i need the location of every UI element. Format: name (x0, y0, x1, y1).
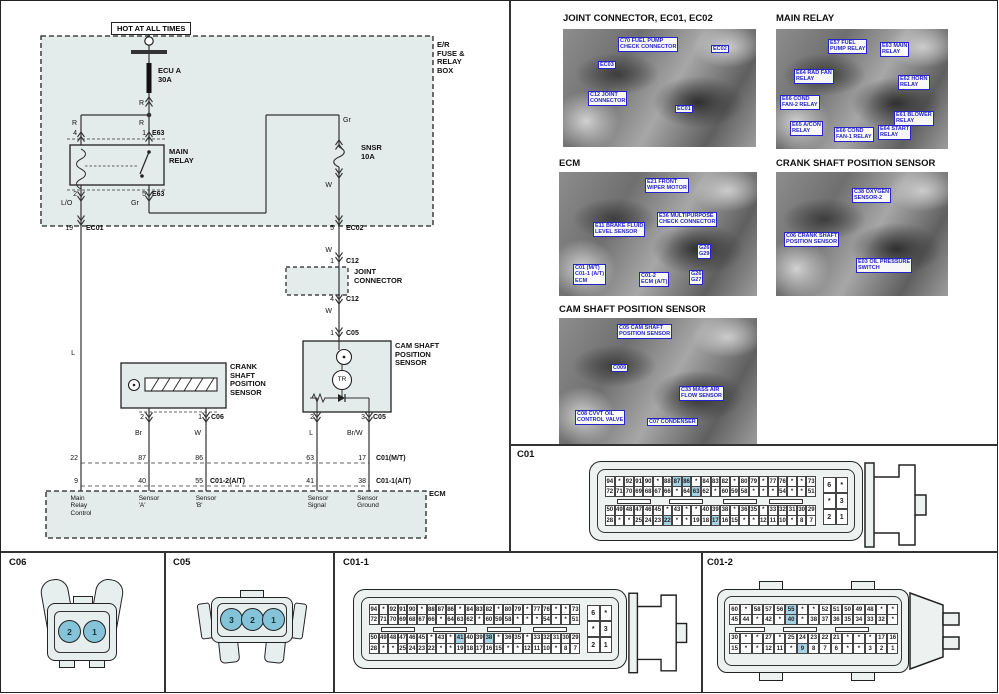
pin-cell: * (774, 633, 785, 644)
pin-cell: 30 (729, 633, 740, 644)
pin-cell: 63 (691, 486, 701, 497)
schematic-text-wire-gr-1: Gr (131, 200, 139, 208)
pin-cell: * (865, 633, 876, 644)
photo-callout: C05 CAM SHAFT POSITION SENSOR (617, 324, 672, 339)
pin-cell: * (887, 604, 898, 615)
pin-cell: * (523, 604, 533, 615)
pin-cell: 92 (388, 604, 398, 615)
pin-cell: 22 (427, 643, 437, 654)
pin-cell: * (740, 604, 751, 615)
photo-callout: E63 MAIN RELAY (880, 42, 909, 57)
pin-cell: * (682, 505, 692, 516)
pin-cell: 80 (739, 476, 749, 487)
pin-cell: 70 (624, 486, 634, 497)
pin-cell: 51 (570, 614, 580, 625)
schematic-text-conn-e63-top: E63 (152, 130, 164, 138)
schematic-text-wire-w-4: W (194, 430, 201, 438)
pin-cell: * (523, 633, 533, 644)
pin-cell: * (797, 614, 808, 625)
connector-key-tab (783, 627, 817, 632)
photo-callout: C01 (M/T) C01-1 (A/T) ECM (573, 264, 606, 285)
schematic-text-main-relay: MAIN RELAY (169, 148, 194, 165)
pin-cell: 63 (455, 614, 465, 625)
photo-callout: E62 HORN RELAY (898, 75, 930, 90)
pin-cell: 38 (808, 614, 819, 625)
photo-callout: E65 A/CON RELAY (790, 121, 823, 136)
pin-cell: 35 (749, 505, 759, 516)
pin-cell: * (455, 604, 465, 615)
schematic-text-wire-r-1: R (139, 100, 144, 108)
pin-cell: 28 (605, 515, 615, 526)
pin-cell: 51 (806, 486, 816, 497)
pin-cell: 73 (570, 604, 580, 615)
pin-cell: 43 (672, 505, 682, 516)
pin-cell: 15 (729, 643, 740, 654)
connector-key-tab (835, 627, 869, 632)
schematic-text-fuse-ecu-a: ECU A 30A (158, 67, 181, 84)
pin-cell: * (759, 505, 769, 516)
schematic-text-pin-2: 2 (73, 191, 77, 199)
schematic-text-wire-w-1: W (325, 182, 332, 190)
schematic-text-conn-c01-2-at: C01-2(A/T) (210, 478, 245, 486)
c05-pin-1: 1 (262, 608, 285, 631)
c06-connector-drawing: 2 1 (31, 573, 141, 683)
pin-cell: * (615, 515, 625, 526)
pin-cell-side: 2 (587, 637, 600, 653)
pin-cell: 70 (388, 614, 398, 625)
schematic-text-pin-1-c12: 1 (330, 258, 334, 266)
schematic-text-ecm-pin-40: 40 (138, 478, 146, 486)
photo-callout: E64 RAD FAN RELAY (794, 69, 834, 84)
connector-key-tab (769, 499, 803, 504)
pin-cell: * (787, 515, 797, 526)
schematic-text-ecm: ECM (429, 490, 446, 499)
pin-cell: 51 (831, 604, 842, 615)
pin-cell-side: * (600, 605, 613, 621)
connector-key-tab (487, 627, 521, 632)
c01-connector-drawing: 94*929190*888786*848382*8079*7776**73727… (589, 457, 989, 552)
pin-cell: 86 (682, 476, 692, 487)
pin-cell: * (887, 614, 898, 625)
pin-cell: 19 (691, 515, 701, 526)
pin-cell: 18 (701, 515, 711, 526)
pin-cell: 60 (484, 614, 494, 625)
schematic-text-pin-4: 4 (73, 130, 77, 138)
pin-cell: 12 (759, 515, 769, 526)
pin-cell: 33 (768, 505, 778, 516)
pin-cell: * (787, 476, 797, 487)
pin-cell: * (797, 486, 807, 497)
photo-callout: E03 OIL PRESSURE SWITCH (856, 258, 912, 273)
pin-cell: 35 (842, 614, 853, 625)
pin-row: 60*58575655**5251504948** (729, 604, 898, 615)
pin-cell: 55 (785, 604, 796, 615)
photo-callout: EC03 (598, 61, 616, 69)
pin-cell: 30 (561, 633, 571, 644)
photo-title-joint-connector: JOINT CONNECTOR, EC01, EC02 (563, 13, 713, 24)
pin-cell: 38 (720, 505, 730, 516)
pin-cell: 23 (808, 633, 819, 644)
pin-cell: 27 (763, 633, 774, 644)
pin-cell: * (446, 633, 456, 644)
pin-cell-side: * (587, 621, 600, 637)
pin-cell: * (672, 515, 682, 526)
pin-cell: 29 (806, 505, 816, 516)
pin-cell: * (551, 614, 561, 625)
pin-cell: 80 (503, 604, 513, 615)
pin-cell: 8 (808, 643, 819, 654)
pin-cell: 16 (887, 633, 898, 644)
pin-cell: * (711, 486, 721, 497)
pin-cell: 32 (876, 614, 887, 625)
schematic-text-crank-sensor: CRANK SHAFT POSITION SENSOR (230, 363, 266, 397)
pin-cell: 8 (561, 643, 571, 654)
divider-bottom-3 (701, 551, 703, 692)
pin-cell: * (759, 486, 769, 497)
schematic-text-pin-2-c06: 2 (140, 414, 144, 422)
pin-cell: 22 (663, 515, 673, 526)
schematic-text-pin-3-c05: 3 (361, 414, 365, 422)
pin-cell: * (740, 633, 751, 644)
connector-key-tab (381, 627, 415, 632)
pin-cell: * (752, 614, 763, 625)
pin-cell: 6 (831, 643, 842, 654)
divider-horizontal-c01 (509, 444, 997, 446)
pin-cell: 77 (532, 604, 542, 615)
pin-cell: 1 (887, 643, 898, 654)
schematic-text-cam-sensor: CAM SHAFT POSITION SENSOR (395, 342, 439, 368)
pin-cell: 83 (711, 476, 721, 487)
pin-cell: 62 (701, 486, 711, 497)
pin-cell: 36 (739, 505, 749, 516)
schematic-text-joint-connector: JOINT CONNECTOR (354, 268, 402, 285)
schematic-text-conn-c01-1-at: C01-1(A/T) (376, 478, 411, 486)
c01-housing (863, 455, 937, 554)
schematic-text-ecm-pin-9: 9 (74, 478, 78, 486)
pin-cell: 56 (774, 604, 785, 615)
c06-pin-2: 2 (58, 620, 81, 643)
photo-callout: E64 START RELAY (878, 125, 911, 140)
pin-cell: * (615, 476, 625, 487)
pin-cell: 8 (797, 515, 807, 526)
pin-cell: * (494, 604, 504, 615)
pin-cell-side: 6 (823, 477, 836, 493)
c01-2-section-title: C01-2 (707, 557, 733, 568)
photo-callout: E66 COND FAN-2 RELAY (780, 95, 820, 110)
pin-cell: 67 (417, 614, 427, 625)
wiring-diagram-page: HOT AT ALL TIMES E/R FUSE & RELAY BOXECU… (0, 0, 998, 693)
pin-cell: * (503, 643, 513, 654)
pin-cell: 38 (484, 633, 494, 644)
photo-callout: C06 CRANK SHAFT POSITION SENSOR (784, 232, 839, 247)
pin-cell: 59 (730, 486, 740, 497)
c05-pin-3: 3 (220, 608, 243, 631)
pin-cell: 46 (407, 633, 417, 644)
pin-cell: 11 (532, 643, 542, 654)
pin-cell: 64 (446, 614, 456, 625)
pin-cell: 19 (455, 643, 465, 654)
schematic-text-wire-r-2: R (72, 120, 77, 128)
pin-cell: 40 (465, 633, 475, 644)
pin-cell: 32 (542, 633, 552, 644)
pin-cell: * (417, 604, 427, 615)
pin-cell: * (740, 643, 751, 654)
pin-cell: 79 (749, 476, 759, 487)
pin-cell: 23 (653, 515, 663, 526)
pin-cell: 12 (763, 643, 774, 654)
pin-cell: 57 (763, 604, 774, 615)
c06-section-title: C06 (9, 557, 26, 568)
pin-cell: 84 (701, 476, 711, 487)
schematic-text-wire-w-3: W (325, 308, 332, 316)
pin-cell: * (730, 505, 740, 516)
schematic-text-ecm-pin-87: 87 (138, 455, 146, 463)
pin-cell: * (808, 604, 819, 615)
pin-cell-side: 3 (600, 621, 613, 637)
pin-cell: 10 (542, 643, 552, 654)
pin-cell: * (379, 604, 389, 615)
pin-cell: * (785, 643, 796, 654)
schematic-text-fuse-snsr: SNSR 10A (361, 144, 382, 161)
schematic-text-wire-br: Br (135, 430, 142, 438)
schematic-text-pin-2-c05: 2 (310, 414, 314, 422)
photo-title-ecm: ECM (559, 158, 580, 169)
photo-callout: C01-2 ECM (A/T) (639, 272, 669, 287)
schematic-text-pin-1-c06: 1 (198, 414, 202, 422)
pin-cell: * (682, 515, 692, 526)
pin-cell: 71 (615, 486, 625, 497)
pin-cell: 18 (465, 643, 475, 654)
pin-cell: 91 (398, 604, 408, 615)
connector-key-tab (433, 627, 467, 632)
pin-cell: 37 (819, 614, 830, 625)
pin-cell: * (653, 476, 663, 487)
pin-cell: 7 (570, 643, 580, 654)
schematic-text-pin-1: 1 (142, 130, 146, 138)
pin-cell: 24 (643, 515, 653, 526)
pin-cell: 7 (819, 643, 830, 654)
pin-cell: 44 (740, 614, 751, 625)
pin-row: 28**25242322**1918171615**121110*87 (369, 643, 580, 654)
schematic-text-er-fuse-relay-box: E/R FUSE & RELAY BOX (437, 41, 465, 75)
cam-sensor-photo: C05 CAM SHAFT POSITION SENSORC009C33 MAS… (559, 318, 757, 444)
c01-pin-grid: 94*929190*888786*848382*8079*7776**73727… (605, 476, 855, 528)
pin-cell: 66 (663, 486, 673, 497)
connector-key-tab (723, 499, 757, 504)
pin-cell: * (749, 515, 759, 526)
pin-cell: 48 (388, 633, 398, 644)
pin-cell: * (853, 633, 864, 644)
pin-cell: 86 (446, 604, 456, 615)
pin-cell: * (774, 614, 785, 625)
pin-cell: * (842, 643, 853, 654)
schematic-text-ecm-fn-sensor-b: Sensor 'B' (196, 495, 217, 510)
photo-callout: E11 BRAKE FLUID LEVEL SENSOR (593, 222, 645, 237)
pin-cell: 24 (407, 643, 417, 654)
pin-cell: 76 (778, 476, 788, 487)
photo-callout: C07 CONDENSER (647, 418, 698, 426)
pin-cell: 60 (729, 604, 740, 615)
pin-cell: 90 (643, 476, 653, 487)
schematic-text-wire-l-1: L (71, 350, 75, 358)
pin-cell: 36 (831, 614, 842, 625)
schematic-text-wire-brw: Br/W (347, 430, 363, 438)
divider-vertical-main (509, 1, 511, 551)
pin-cell: 45 (653, 505, 663, 516)
c05-connector-drawing: 3 2 1 (191, 573, 321, 683)
pin-cell: 31 (787, 505, 797, 516)
c01-section-title: C01 (517, 449, 534, 460)
photo-callout: C08 CVVT OIL CONTROL VALVE (575, 410, 625, 425)
schematic-text-wire-l-2: L (309, 430, 313, 438)
schematic-text-conn-ec02: EC02 (346, 225, 364, 233)
schematic-text-ecm-fn-sensor-a: Sensor 'A' (139, 495, 160, 510)
pin-cell: 24 (797, 633, 808, 644)
pin-cell: 77 (768, 476, 778, 487)
schematic-text-wire-gr-2: Gr (343, 117, 351, 125)
schematic-text-tr: TR (338, 376, 347, 383)
pin-cell: 40 (701, 505, 711, 516)
pin-cell: * (624, 515, 634, 526)
pin-cell: 15 (494, 643, 504, 654)
pin-cell: * (561, 604, 571, 615)
pin-cell: 73 (806, 476, 816, 487)
photo-callout: E66 COND FAN-1 RELAY (834, 127, 874, 142)
photo-callout: EC02 (711, 45, 729, 53)
pin-cell: 36 (503, 633, 513, 644)
pin-cell: * (730, 476, 740, 487)
pin-cell: 25 (785, 633, 796, 644)
pin-cell: 68 (643, 486, 653, 497)
pin-cell: 50 (842, 604, 853, 615)
connector-key-tab (533, 627, 567, 632)
pin-cell: 76 (542, 604, 552, 615)
pin-cell: 67 (653, 486, 663, 497)
photo-title-cam-sensor: CAM SHAFT POSITION SENSOR (559, 304, 706, 315)
pin-cell: 41 (455, 633, 465, 644)
pin-cell: 25 (634, 515, 644, 526)
pin-cell: 91 (634, 476, 644, 487)
schematic-text-ecm-pin-55: 55 (195, 478, 203, 486)
pin-row: 504948474645*43*41403938*3635*3332313029 (369, 633, 580, 644)
pin-cell: 64 (682, 486, 692, 497)
pin-row: 30**27*2524232221***1716 (729, 633, 898, 644)
pin-cell: 39 (711, 505, 721, 516)
pin-cell: * (672, 486, 682, 497)
pin-cell: 16 (484, 643, 494, 654)
pin-cell: * (388, 643, 398, 654)
hot-at-all-times-label: HOT AT ALL TIMES (111, 22, 191, 35)
pin-row: 94*929190*888786*848382*8079*7776**73 (605, 476, 816, 487)
pin-cell: 66 (427, 614, 437, 625)
pin-cell: 30 (797, 505, 807, 516)
pin-cell: * (446, 643, 456, 654)
photo-callout: C12 JOINT CONNECTOR (588, 91, 627, 106)
pin-cell: 48 (624, 505, 634, 516)
pin-cell: 22 (819, 633, 830, 644)
pin-cell: 87 (436, 604, 446, 615)
schematic-text-conn-c12-top: C12 (346, 258, 359, 266)
c01-1-section-title: C01-1 (343, 557, 369, 568)
pin-cell: 17 (711, 515, 721, 526)
pin-cell: 45 (417, 633, 427, 644)
schematic-text-ecm-pin-17: 17 (358, 455, 366, 463)
pin-cell-side: 2 (823, 509, 836, 525)
photo-callout: C70 FUEL PUMP CHECK CONNECTOR (618, 37, 678, 52)
pin-cell: 92 (624, 476, 634, 487)
pin-cell: 68 (407, 614, 417, 625)
photo-callout: G26 G29 (697, 244, 711, 259)
c06-foot-left (59, 660, 75, 668)
schematic-text-conn-c05-top: C05 (346, 330, 359, 338)
pin-cell: 12 (523, 643, 533, 654)
main-relay-photo: E57 FUEL PUMP RELAYE63 MAIN RELAYE64 RAD… (776, 29, 948, 149)
pin-cell: 82 (720, 476, 730, 487)
pin-cell: 2 (876, 643, 887, 654)
c05-section-title: C05 (173, 557, 190, 568)
pin-cell: * (749, 486, 759, 497)
schematic-text-conn-c12-bottom: C12 (346, 296, 359, 304)
pin-row: 504948474645*43**403938*3635*3332313029 (605, 505, 816, 516)
pin-cell: * (561, 614, 571, 625)
pin-cell: 34 (853, 614, 864, 625)
schematic-text-wire-lo: L/O (61, 200, 72, 208)
photo-callout: E36 MULTIPURPOSE CHECK CONNECTOR (657, 212, 717, 227)
pin-cell: * (532, 614, 542, 625)
schematic-text-pin-4-c12: 4 (330, 296, 334, 304)
pin-cell-side: 6 (587, 605, 600, 621)
pin-cell: * (436, 614, 446, 625)
pin-cell: 79 (513, 604, 523, 615)
pin-cell: 10 (778, 515, 788, 526)
pin-cell: 52 (819, 604, 830, 615)
pin-cell: 60 (720, 486, 730, 497)
pin-cell: * (663, 505, 673, 516)
pin-cell: 11 (774, 643, 785, 654)
c01-2-pin-grid: 60*58575655**5251504948**4544*42*40*3837… (729, 604, 901, 656)
schematic-text-ecm-pin-41: 41 (306, 478, 314, 486)
schematic-text-pin-5-ec02: 5 (330, 225, 334, 233)
joint-connector-photo: C70 FUEL PUMP CHECK CONNECTOREC02EC03C12… (563, 29, 756, 147)
pin-cell: * (853, 643, 864, 654)
photo-callout: E57 FUEL PUMP RELAY (828, 39, 867, 54)
pin-cell: * (513, 643, 523, 654)
c01-1-housing (627, 583, 697, 682)
schematic-text-ecm-pin-86: 86 (195, 455, 203, 463)
pin-cell: * (523, 614, 533, 625)
pin-cell: 7 (806, 515, 816, 526)
pin-cell: 50 (369, 633, 379, 644)
photo-callout: E21 FRONT WIPER MOTOR (645, 178, 689, 193)
photo-callout: EC01 (675, 105, 693, 113)
c01-1-pin-grid: 94*929190*888786*848382*8079*7776**73727… (369, 604, 619, 656)
schematic-text-conn-c06: C06 (211, 414, 224, 422)
schematic-text-pin-1-c05: 1 (330, 330, 334, 338)
schematic-text-conn-ec01: EC01 (86, 225, 104, 233)
pin-cell: 62 (465, 614, 475, 625)
crank-sensor-photo: C38 OXYGEN SENSOR-2C06 CRANK SHAFT POSIT… (776, 172, 948, 296)
pin-cell: * (797, 476, 807, 487)
connector-key-tab (617, 499, 651, 504)
pin-cell: * (876, 604, 887, 615)
pin-cell: 43 (436, 633, 446, 644)
photo-callout: C009 (611, 364, 628, 372)
photo-callout: E61 BLOWER RELAY (894, 111, 934, 126)
pin-cell: * (436, 643, 446, 654)
pin-cell: 82 (484, 604, 494, 615)
pin-cell: 33 (865, 614, 876, 625)
c06-pin-1: 1 (83, 620, 106, 643)
